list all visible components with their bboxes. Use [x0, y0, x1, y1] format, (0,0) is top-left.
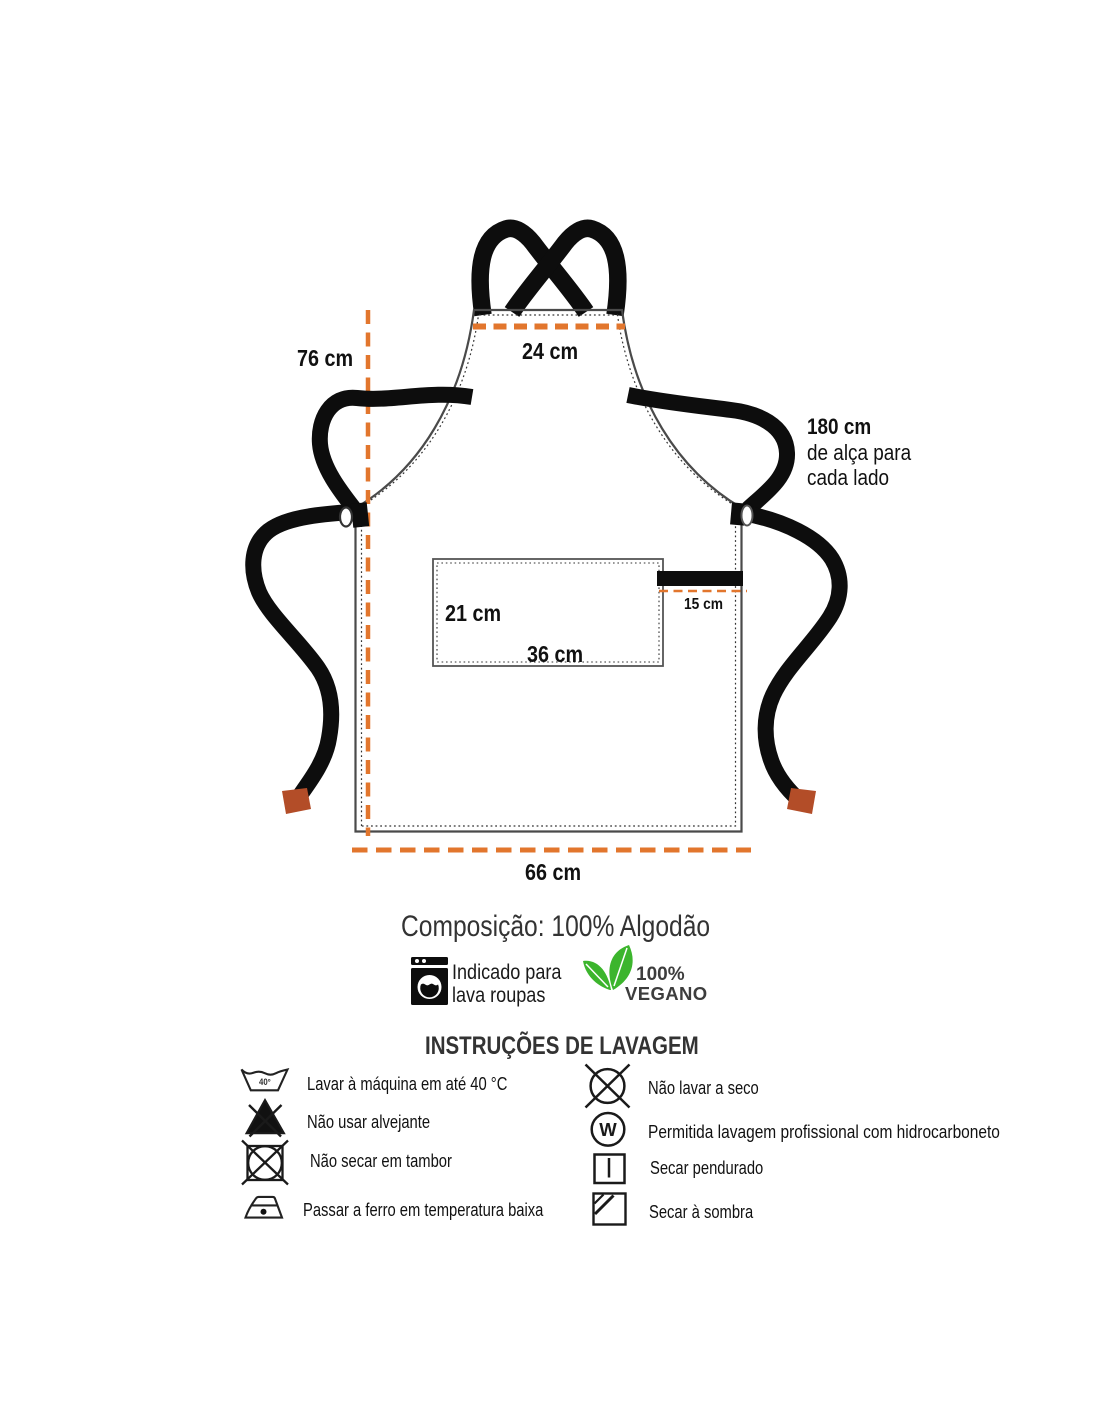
svg-text:W: W — [599, 1119, 617, 1140]
